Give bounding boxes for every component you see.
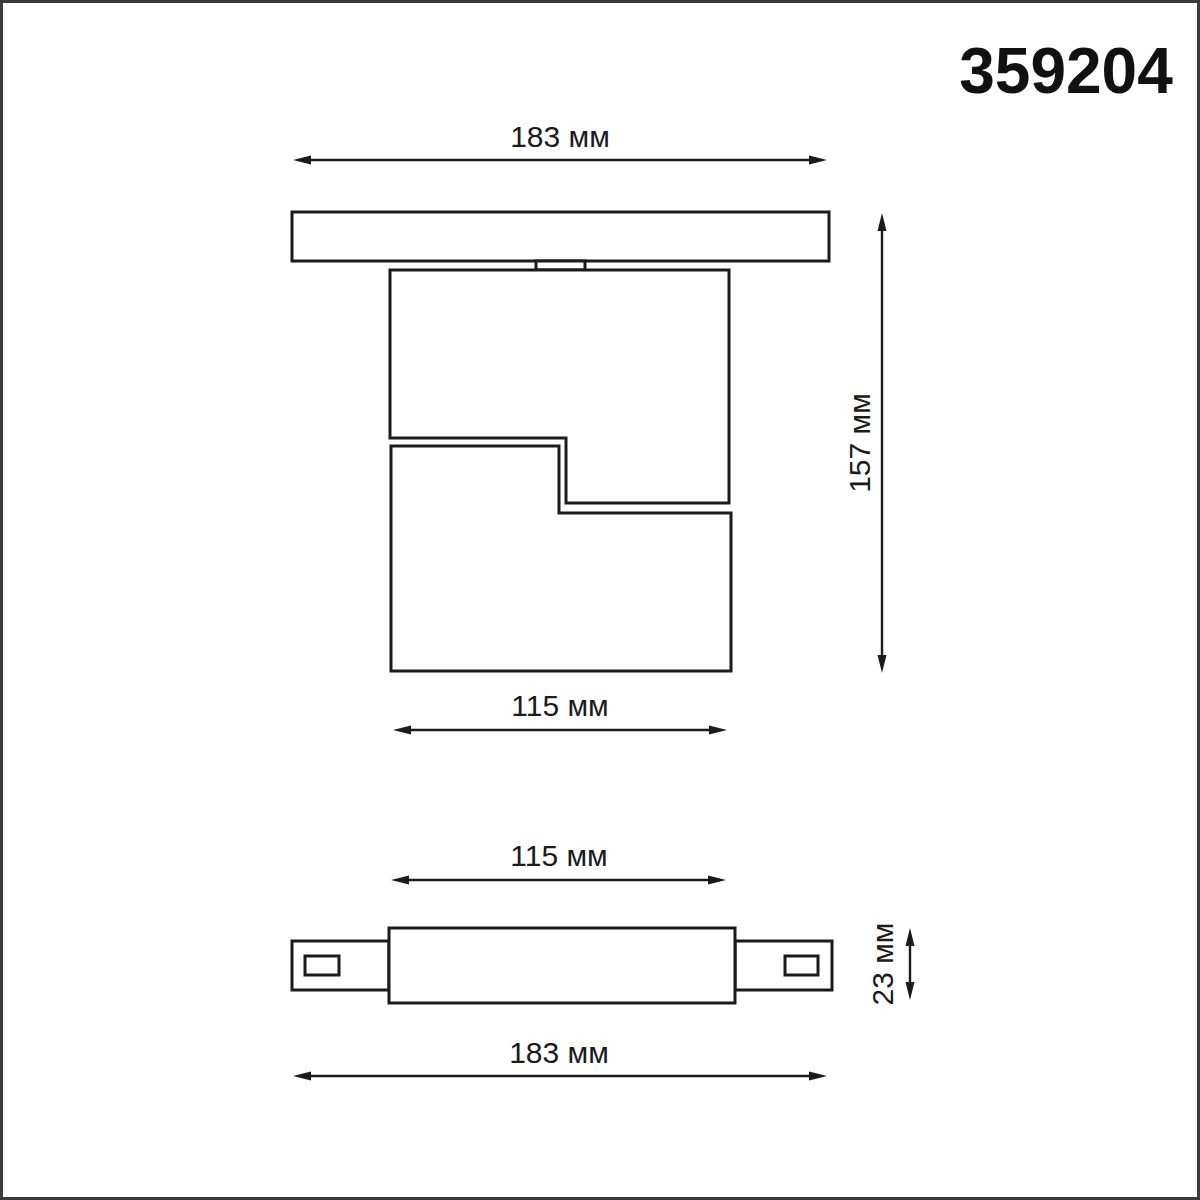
dim-label-front-track-length: 183 мм bbox=[510, 120, 610, 153]
arrowhead-top bbox=[906, 928, 915, 946]
side-left-slot bbox=[305, 956, 339, 975]
arrowhead-right bbox=[709, 726, 727, 735]
arrowhead-bottom bbox=[906, 982, 915, 1000]
arrowhead-right bbox=[809, 1072, 827, 1081]
arrowhead-right bbox=[809, 156, 827, 165]
dim-front-total-height: 157 мм bbox=[843, 213, 887, 673]
arrowhead-bottom bbox=[878, 655, 887, 673]
arrowhead-top bbox=[878, 213, 887, 231]
side-view: 115 мм 23 мм 18 bbox=[292, 839, 915, 1081]
front-view: 183 мм 157 мм 115 мм bbox=[292, 120, 887, 735]
track-rail bbox=[292, 212, 829, 261]
dim-side-body-width: 115 мм bbox=[391, 839, 726, 885]
dim-side-track-height: 23 мм bbox=[866, 923, 915, 1006]
dim-label-front-body-width: 115 мм bbox=[511, 689, 608, 722]
dim-side-track-length: 183 мм bbox=[293, 1036, 827, 1081]
technical-drawing: 359204 183 мм 157 мм bbox=[3, 3, 1200, 1200]
arrowhead-left bbox=[391, 876, 409, 885]
arrowhead-left bbox=[293, 1072, 311, 1081]
dim-label-side-track-length: 183 мм bbox=[509, 1036, 609, 1069]
dim-label-side-body-width: 115 мм bbox=[510, 839, 607, 872]
side-right-slot bbox=[785, 956, 818, 975]
arrowhead-right bbox=[708, 876, 726, 885]
dim-front-body-width: 115 мм bbox=[393, 689, 727, 735]
drawing-canvas: 359204 183 мм 157 мм bbox=[0, 0, 1200, 1200]
dim-label-front-total-height: 157 мм bbox=[843, 393, 876, 493]
side-body-profile bbox=[389, 928, 735, 1003]
dim-front-track-length: 183 мм bbox=[293, 120, 827, 165]
product-article: 359204 bbox=[959, 35, 1173, 107]
arrowhead-left bbox=[293, 156, 311, 165]
dim-label-side-track-height: 23 мм bbox=[866, 923, 899, 1006]
arrowhead-left bbox=[393, 726, 411, 735]
